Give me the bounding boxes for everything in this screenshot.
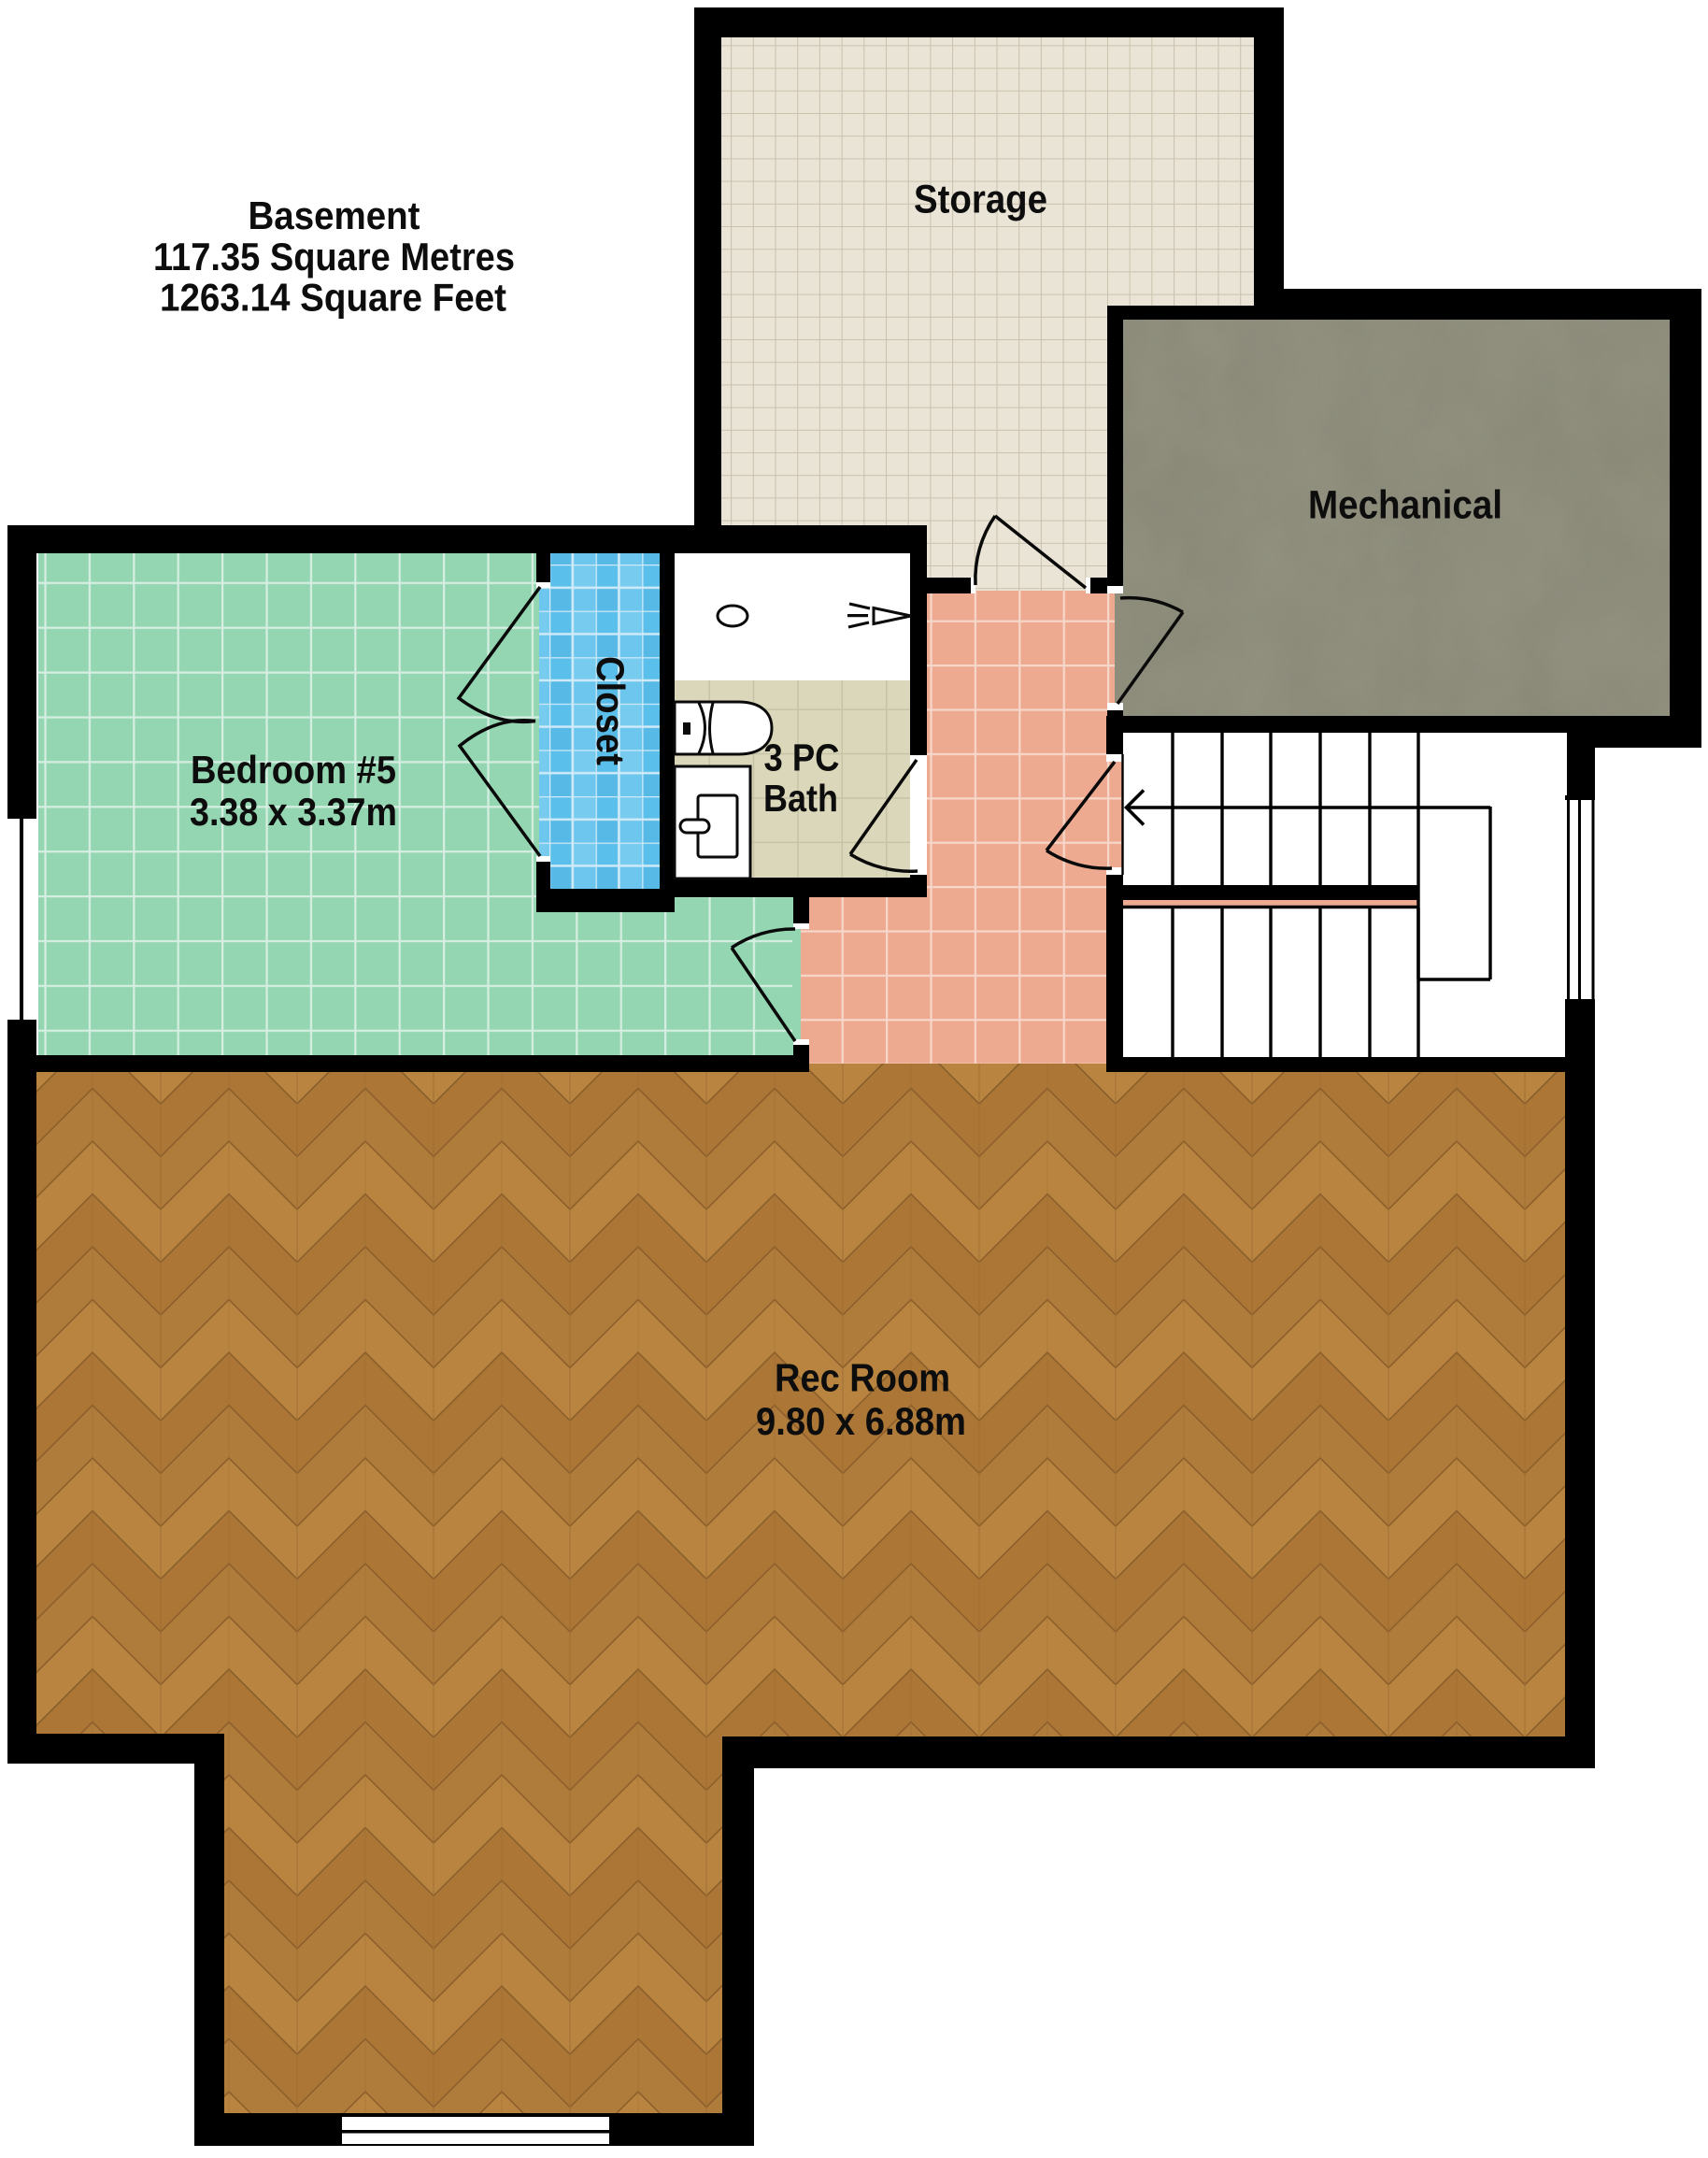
svg-text:1263.14 Square Feet: 1263.14 Square Feet: [160, 276, 506, 320]
svg-text:Bedroom #5: Bedroom #5: [191, 748, 396, 792]
svg-text:Closet: Closet: [589, 656, 633, 765]
svg-text:Basement: Basement: [249, 193, 420, 237]
svg-text:9.80 x 6.88m: 9.80 x 6.88m: [756, 1399, 966, 1443]
svg-text:3 PC: 3 PC: [764, 736, 840, 779]
svg-text:Mechanical: Mechanical: [1308, 484, 1502, 528]
svg-text:Rec Room: Rec Room: [775, 1356, 950, 1400]
svg-text:3.38 x 3.37m: 3.38 x 3.37m: [190, 790, 397, 834]
svg-text:Storage: Storage: [914, 179, 1047, 222]
svg-text:117.35 Square Metres: 117.35 Square Metres: [153, 235, 515, 279]
svg-text:Bath: Bath: [763, 777, 838, 820]
